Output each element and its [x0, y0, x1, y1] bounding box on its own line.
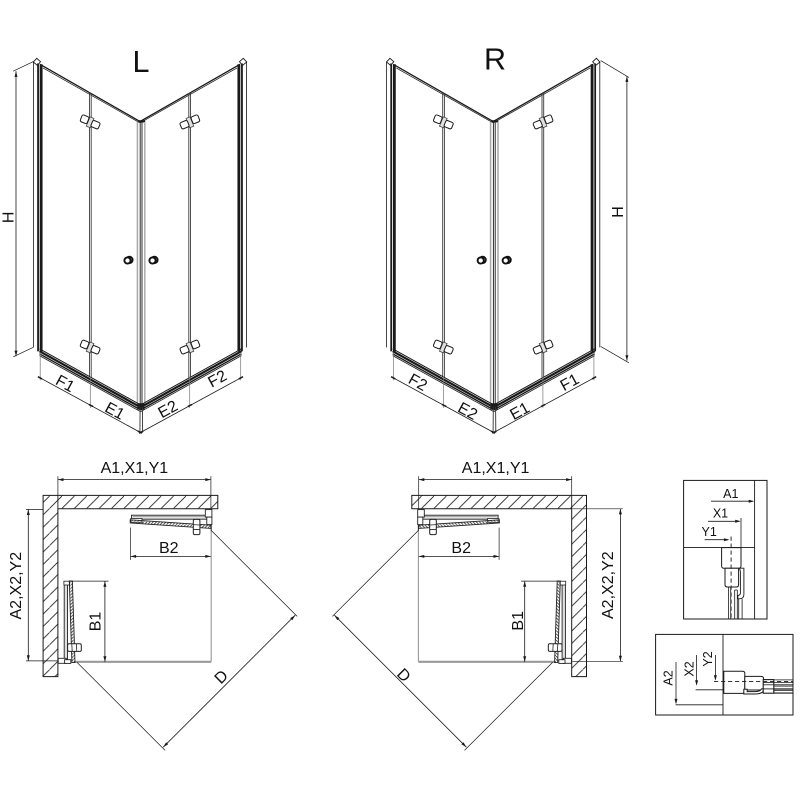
svg-text:A2: A2	[662, 670, 676, 685]
svg-text:L: L	[133, 45, 150, 79]
svg-text:B2: B2	[159, 540, 179, 557]
svg-text:B2: B2	[451, 540, 471, 557]
svg-text:R: R	[484, 43, 506, 77]
svg-text:X2: X2	[683, 661, 697, 676]
svg-text:B1: B1	[88, 612, 105, 632]
svg-text:A2,X2,Y2: A2,X2,Y2	[600, 551, 617, 619]
svg-text:X1: X1	[713, 507, 728, 521]
svg-text:A1: A1	[723, 487, 738, 501]
svg-text:H: H	[1, 212, 18, 224]
svg-text:A1,X1,Y1: A1,X1,Y1	[101, 460, 169, 477]
svg-text:A1,X1,Y1: A1,X1,Y1	[462, 460, 530, 477]
svg-text:A2,X2,Y2: A2,X2,Y2	[8, 552, 25, 620]
svg-text:Y2: Y2	[701, 651, 715, 666]
svg-text:H: H	[610, 206, 627, 218]
svg-text:Y1: Y1	[702, 525, 717, 539]
svg-text:B1: B1	[510, 611, 527, 631]
